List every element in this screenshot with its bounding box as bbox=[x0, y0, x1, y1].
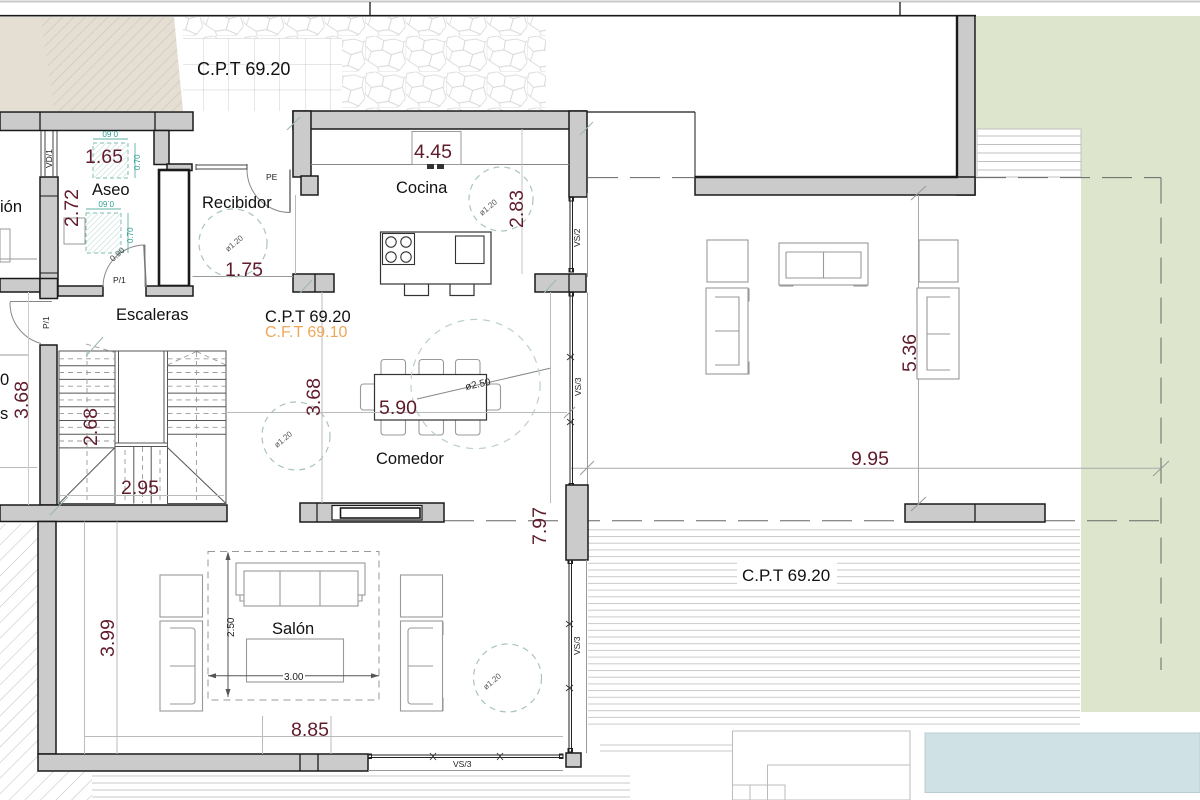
svg-text:Salón: Salón bbox=[272, 620, 314, 638]
svg-text:s: s bbox=[0, 405, 8, 423]
svg-text:VS/3: VS/3 bbox=[573, 377, 583, 396]
svg-text:9.95: 9.95 bbox=[851, 448, 889, 470]
svg-text:P/1: P/1 bbox=[41, 316, 51, 329]
svg-text:0: 0 bbox=[0, 371, 9, 389]
svg-text:Cocina: Cocina bbox=[396, 179, 448, 197]
svg-text:3.68: 3.68 bbox=[303, 378, 325, 416]
svg-text:C.P.T 69.20: C.P.T 69.20 bbox=[197, 59, 290, 79]
svg-text:2.68: 2.68 bbox=[80, 408, 102, 446]
svg-text:VS/3: VS/3 bbox=[453, 759, 472, 769]
svg-text:Comedor: Comedor bbox=[376, 450, 444, 468]
svg-text:2.83: 2.83 bbox=[506, 190, 528, 228]
svg-text:2.95: 2.95 bbox=[121, 477, 159, 499]
svg-text:2.50: 2.50 bbox=[226, 617, 237, 637]
svg-text:0.70: 0.70 bbox=[126, 227, 135, 243]
svg-text:Escaleras: Escaleras bbox=[116, 306, 188, 324]
svg-text:Aseo: Aseo bbox=[92, 181, 130, 199]
svg-text:C.F.T 69.10: C.F.T 69.10 bbox=[265, 324, 348, 341]
svg-text:VD/1: VD/1 bbox=[44, 149, 54, 168]
svg-text:Recibidor: Recibidor bbox=[202, 194, 272, 212]
svg-text:C.P.T 69.20: C.P.T 69.20 bbox=[742, 566, 830, 585]
svg-text:4.45: 4.45 bbox=[414, 141, 452, 163]
svg-text:VS/3: VS/3 bbox=[572, 636, 582, 655]
svg-text:0.70: 0.70 bbox=[133, 154, 142, 170]
svg-text:3.00: 3.00 bbox=[284, 672, 304, 683]
svg-text:7.97: 7.97 bbox=[529, 507, 551, 545]
svg-text:3.68: 3.68 bbox=[11, 381, 33, 419]
svg-text:5.90: 5.90 bbox=[379, 397, 417, 419]
svg-text:2.72: 2.72 bbox=[61, 189, 83, 227]
svg-text:ión: ión bbox=[0, 198, 22, 216]
svg-text:PE: PE bbox=[266, 172, 278, 182]
svg-text:0.60: 0.60 bbox=[102, 129, 118, 138]
svg-text:P/1: P/1 bbox=[113, 275, 126, 285]
svg-text:0.60: 0.60 bbox=[98, 199, 114, 208]
svg-text:3.99: 3.99 bbox=[97, 619, 119, 657]
svg-text:1.65: 1.65 bbox=[85, 146, 123, 168]
svg-text:VS/2: VS/2 bbox=[572, 228, 582, 247]
svg-text:1.75: 1.75 bbox=[225, 259, 263, 281]
svg-text:8.85: 8.85 bbox=[291, 719, 329, 741]
